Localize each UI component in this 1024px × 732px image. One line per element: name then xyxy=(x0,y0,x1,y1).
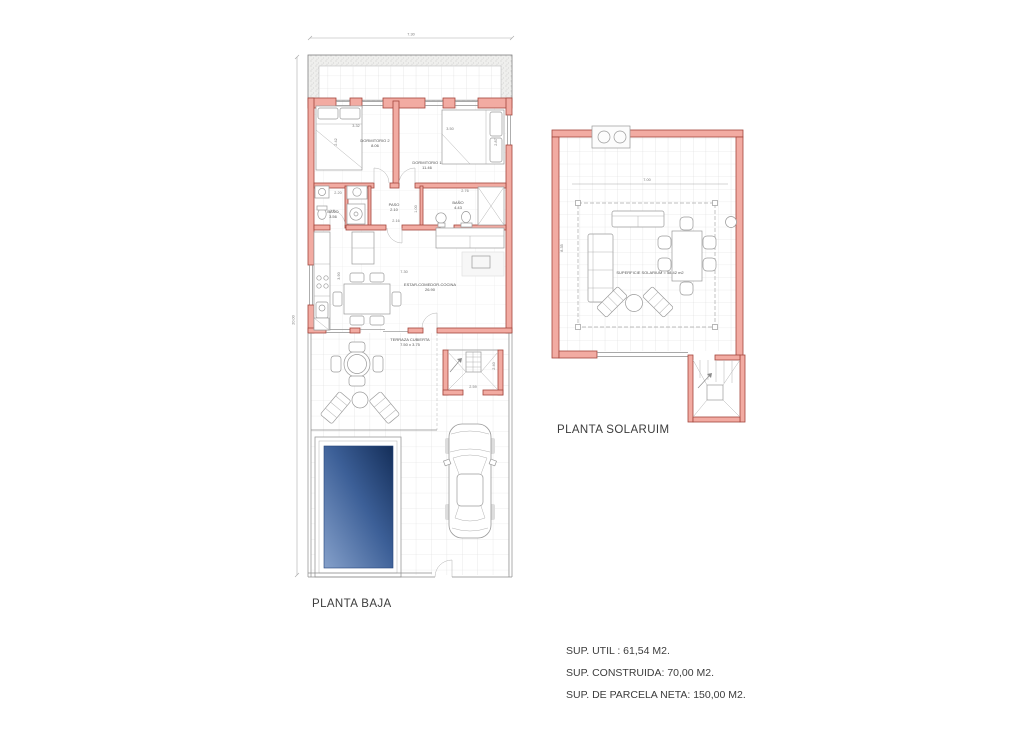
washbasin-icon xyxy=(436,213,446,223)
summary-line-1: SUP. UTIL : 61,54 M2. xyxy=(566,645,670,657)
room-area-estar: 26.90 xyxy=(425,287,436,292)
room-area-bano1: 3.56 xyxy=(329,214,338,219)
summary-line-2: SUP. CONSTRUIDA: 70,00 M2. xyxy=(566,667,714,679)
dim-solarium-h: 8.35 xyxy=(560,244,564,251)
side-table xyxy=(352,392,368,408)
planta-baja-plan: 7.30 20.00 xyxy=(292,33,515,611)
side-table xyxy=(626,295,643,312)
dim-bano1: 2.20 xyxy=(334,191,341,195)
room-area-dorm1: 11.46 xyxy=(422,165,432,170)
plan-title-baja: PLANTA BAJA xyxy=(312,598,392,610)
dim-label-plot-width: 7.30 xyxy=(407,33,414,37)
summary-line-3: SUP. DE PARCELA NETA: 150,00 M2. xyxy=(566,689,746,701)
terrace-table xyxy=(344,351,370,377)
dim-estar-w: 7.30 xyxy=(400,270,407,274)
room-area-bano2: 4.43 xyxy=(454,205,463,210)
toilet-icon xyxy=(462,211,471,222)
dim-stairs-2: 2.40 xyxy=(492,362,496,369)
dim-paso-1: 2.16 xyxy=(392,219,399,223)
car xyxy=(443,424,496,538)
pool xyxy=(315,437,401,577)
dim-bano2: 2.76 xyxy=(461,189,468,193)
dim-dorm2-w: 3.32 xyxy=(352,124,359,128)
dim-label-plot-height: 20.00 xyxy=(292,315,296,325)
dim-solarium-w: 7.00 xyxy=(643,178,650,182)
pool-water xyxy=(324,446,393,568)
floor-plan-drawing: 7.30 20.00 xyxy=(0,0,1024,732)
solarium-surface-label: SUPERFICIE SOLARIUM = 58.42 m2 xyxy=(616,270,684,275)
room-area-dorm2: 8.06 xyxy=(371,143,380,148)
dim-dorm2-h: 2.42 xyxy=(334,138,338,145)
dim-dorm1-h: 2.87 xyxy=(494,138,498,145)
kitchen-counter xyxy=(314,232,330,330)
solarium-stairs xyxy=(688,355,745,422)
room-area-paso: 2.10 xyxy=(390,207,399,212)
plan-title-solarium: PLANTA SOLARUIM xyxy=(557,424,670,436)
roof-terrace xyxy=(308,55,512,101)
planta-solarium-plan: 7.00 8.35 xyxy=(552,126,745,436)
dim-paso-2: 1.00 xyxy=(414,205,418,212)
dim-estar-h: 3.90 xyxy=(337,272,341,279)
drawing-sheet: 7.30 20.00 xyxy=(0,0,1024,732)
dim-dorm1-w: 3.50 xyxy=(446,127,453,131)
room-area-terraza: 7.50 x 3.75 xyxy=(400,342,421,347)
rug xyxy=(462,252,504,276)
chimney xyxy=(592,126,630,148)
dim-stairs-1: 2.59 xyxy=(469,385,476,389)
surface-summary: SUP. UTIL : 61,54 M2. SUP. CONSTRUIDA: 7… xyxy=(566,645,746,701)
side-table xyxy=(726,217,737,228)
